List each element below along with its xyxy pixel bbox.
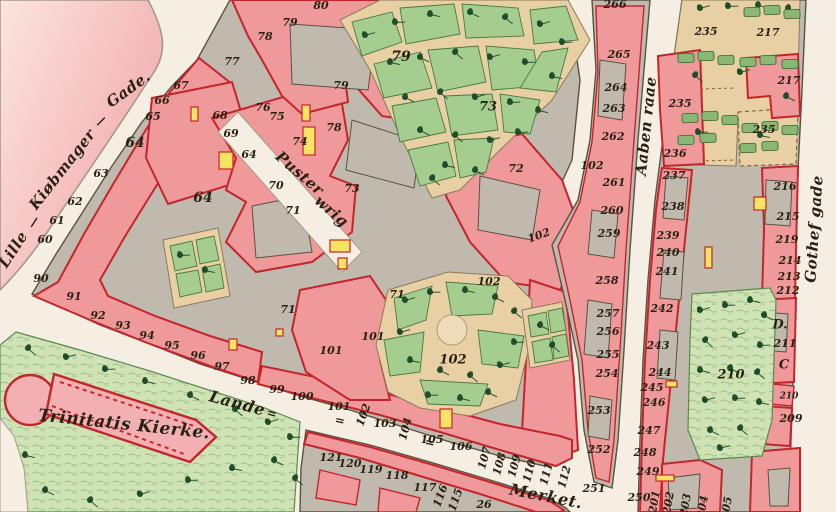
plot-number: 69 xyxy=(223,127,239,140)
plot-number: 101 xyxy=(362,330,385,343)
garden-circle-clearing xyxy=(437,315,467,345)
hedge-icon xyxy=(744,7,760,17)
plot-number: 73 xyxy=(344,182,360,195)
plot-number: 73 xyxy=(479,100,497,115)
courtyard-garden-east xyxy=(522,302,570,368)
hedge-icon xyxy=(784,9,800,19)
plot-number: 247 xyxy=(637,424,661,437)
plot-number: 117 xyxy=(414,481,437,494)
hedge-icon xyxy=(762,141,778,151)
plot-number: 78 xyxy=(257,30,273,43)
plot-number: 213 xyxy=(777,270,801,283)
plot-number: 212 xyxy=(776,284,800,297)
plot-number: 70 xyxy=(268,179,284,192)
yellow-building xyxy=(191,107,198,121)
yellow-building xyxy=(754,197,766,210)
plot-number: 217 xyxy=(777,74,801,87)
plot-number: 121 xyxy=(320,451,343,464)
plot-number: 260 xyxy=(600,204,624,217)
plot-number: 62 xyxy=(67,195,83,208)
plot-number: 239 xyxy=(656,229,680,242)
plot-number: 76 xyxy=(255,101,271,114)
plot-number: 77 xyxy=(224,55,240,68)
plot-number: 219 xyxy=(775,233,799,246)
district-letter: D. xyxy=(771,318,787,333)
historical-map: 6061626364656667686964647071757677787980… xyxy=(0,0,836,512)
yellow-building xyxy=(338,258,347,269)
plot-number: 102 xyxy=(478,275,501,288)
plot-number: 235 xyxy=(752,123,776,136)
plot-number: 80 xyxy=(313,0,329,12)
map-canvas: 6061626364656667686964647071757677787980… xyxy=(0,0,836,512)
plot-number: 257 xyxy=(596,307,620,320)
plot-number: 79 xyxy=(391,49,411,65)
plot-number: 64 xyxy=(125,135,144,151)
plot-number: 95 xyxy=(164,339,179,352)
plot-number: 235 xyxy=(668,97,692,110)
plot-number: 60 xyxy=(37,233,53,246)
hedge-icon xyxy=(764,5,780,15)
plot-number: 252 xyxy=(587,443,611,456)
plot-number: 71 xyxy=(285,204,300,217)
plot-number: 236 xyxy=(663,147,687,160)
hedge-icon xyxy=(760,55,776,65)
plot-number: 98 xyxy=(240,374,256,387)
garden-bed xyxy=(532,338,553,363)
plot-number: 211 xyxy=(773,337,797,350)
plot-number: 78 xyxy=(326,121,342,134)
plot-number: 92 xyxy=(90,309,106,322)
plot-number: 94 xyxy=(139,329,154,342)
plot-number: 262 xyxy=(601,130,625,143)
plot-number: 67 xyxy=(173,79,189,92)
hedge-icon xyxy=(722,115,738,125)
plot-number: 237 xyxy=(662,169,686,182)
yellow-building xyxy=(276,329,283,336)
plot-number: 248 xyxy=(633,446,657,459)
street-dash: = xyxy=(333,413,346,429)
plot-number: 216 xyxy=(773,180,797,193)
plot-number: 119 xyxy=(360,463,383,476)
plot-number: 91 xyxy=(66,290,81,303)
plot-number: 255 xyxy=(596,348,620,361)
courtyard xyxy=(768,468,790,506)
plot-number: 253 xyxy=(587,404,611,417)
plot-number: 241 xyxy=(655,265,679,278)
plot-number: 215 xyxy=(776,210,800,223)
hedge-icon xyxy=(718,55,734,65)
hedge-icon xyxy=(740,143,756,153)
plot-number: 214 xyxy=(778,254,802,267)
plot-number: 249 xyxy=(636,465,660,478)
hedge-icon xyxy=(682,113,698,123)
yellow-building xyxy=(666,381,677,387)
plot-number: 264 xyxy=(604,81,628,94)
hedge-icon xyxy=(740,57,756,67)
plot-number: 246 xyxy=(642,396,666,409)
street-label: Gothef gade xyxy=(801,175,826,284)
plot-number: 63 xyxy=(93,167,109,180)
garden-bed xyxy=(176,270,202,297)
courtyard xyxy=(663,176,688,220)
yellow-building xyxy=(330,240,350,252)
hedge-icon xyxy=(678,135,694,145)
plot-number: 97 xyxy=(214,360,230,373)
plot-number: 102 xyxy=(439,353,466,368)
yellow-building xyxy=(229,339,237,350)
yellow-building xyxy=(705,247,712,268)
plot-number: 210 xyxy=(779,392,800,402)
plot-number: 72 xyxy=(508,162,524,175)
plot-number: 261 xyxy=(602,176,626,189)
plot-number: 79 xyxy=(282,16,298,29)
hedge-icon xyxy=(698,51,714,61)
hedge-icon xyxy=(700,133,716,143)
plot-number: 238 xyxy=(661,200,685,213)
plot-number: 266 xyxy=(603,0,627,11)
plot-number: 263 xyxy=(602,102,626,115)
plot-number: 250 xyxy=(627,491,651,504)
plot-number: 79 xyxy=(333,79,349,92)
plot-number: 64 xyxy=(241,148,256,161)
plot-number: 217 xyxy=(756,26,780,39)
yellow-building xyxy=(440,409,452,428)
plot-number: 90 xyxy=(33,272,49,285)
plot-number: 74 xyxy=(292,135,307,148)
plot-number: 102 xyxy=(581,159,604,172)
plot-number: 100 xyxy=(291,390,314,403)
plot-number: 93 xyxy=(115,319,131,332)
district-letter: C xyxy=(779,358,790,373)
plot-number: 242 xyxy=(650,302,674,315)
plot-number: 71 xyxy=(389,288,404,301)
courtyard xyxy=(588,396,612,440)
plot-number: 96 xyxy=(190,349,206,362)
plot-number: 245 xyxy=(640,381,664,394)
plot-number: 66 xyxy=(154,94,170,107)
plot-number: 254 xyxy=(595,367,619,380)
garden-bed xyxy=(384,332,424,376)
plot-number: 71 xyxy=(280,303,295,316)
plot-number: 243 xyxy=(646,339,670,352)
plot-number: 210 xyxy=(716,368,744,383)
plot-number: 244 xyxy=(648,366,672,379)
plot-number: 65 xyxy=(145,110,160,123)
plot-number: 101 xyxy=(320,344,343,357)
plot-number: 209 xyxy=(779,412,803,425)
hedge-icon xyxy=(782,59,798,69)
plot-number: 235 xyxy=(694,25,718,38)
plot-number: 256 xyxy=(596,325,620,338)
plot-number: 68 xyxy=(212,109,228,122)
plot-number: 103 xyxy=(374,417,397,430)
hedge-icon xyxy=(702,111,718,121)
plot-number: 112 xyxy=(555,464,574,490)
plot-number: 251 xyxy=(582,482,606,495)
plot-number: 106 xyxy=(450,440,473,453)
plot-number: 99 xyxy=(269,383,285,396)
plot-number: 64 xyxy=(193,190,212,206)
hedge-icon xyxy=(782,125,798,135)
plot-number: 26 xyxy=(475,498,492,511)
yellow-building xyxy=(219,152,233,169)
plot-number: 101 xyxy=(328,400,351,413)
garden-bed xyxy=(170,241,197,271)
courtyard-garden-west xyxy=(163,228,230,308)
plot-number: 258 xyxy=(595,274,619,287)
plot-number: 75 xyxy=(269,110,284,123)
street-dash: = xyxy=(423,435,436,451)
plot-number: 259 xyxy=(597,227,621,240)
plot-number: 61 xyxy=(49,214,64,227)
yellow-building xyxy=(302,105,310,121)
plot-number: 265 xyxy=(607,48,631,61)
plot-number: 118 xyxy=(386,469,409,482)
plot-number: 240 xyxy=(656,246,680,259)
hedge-icon xyxy=(678,53,694,63)
